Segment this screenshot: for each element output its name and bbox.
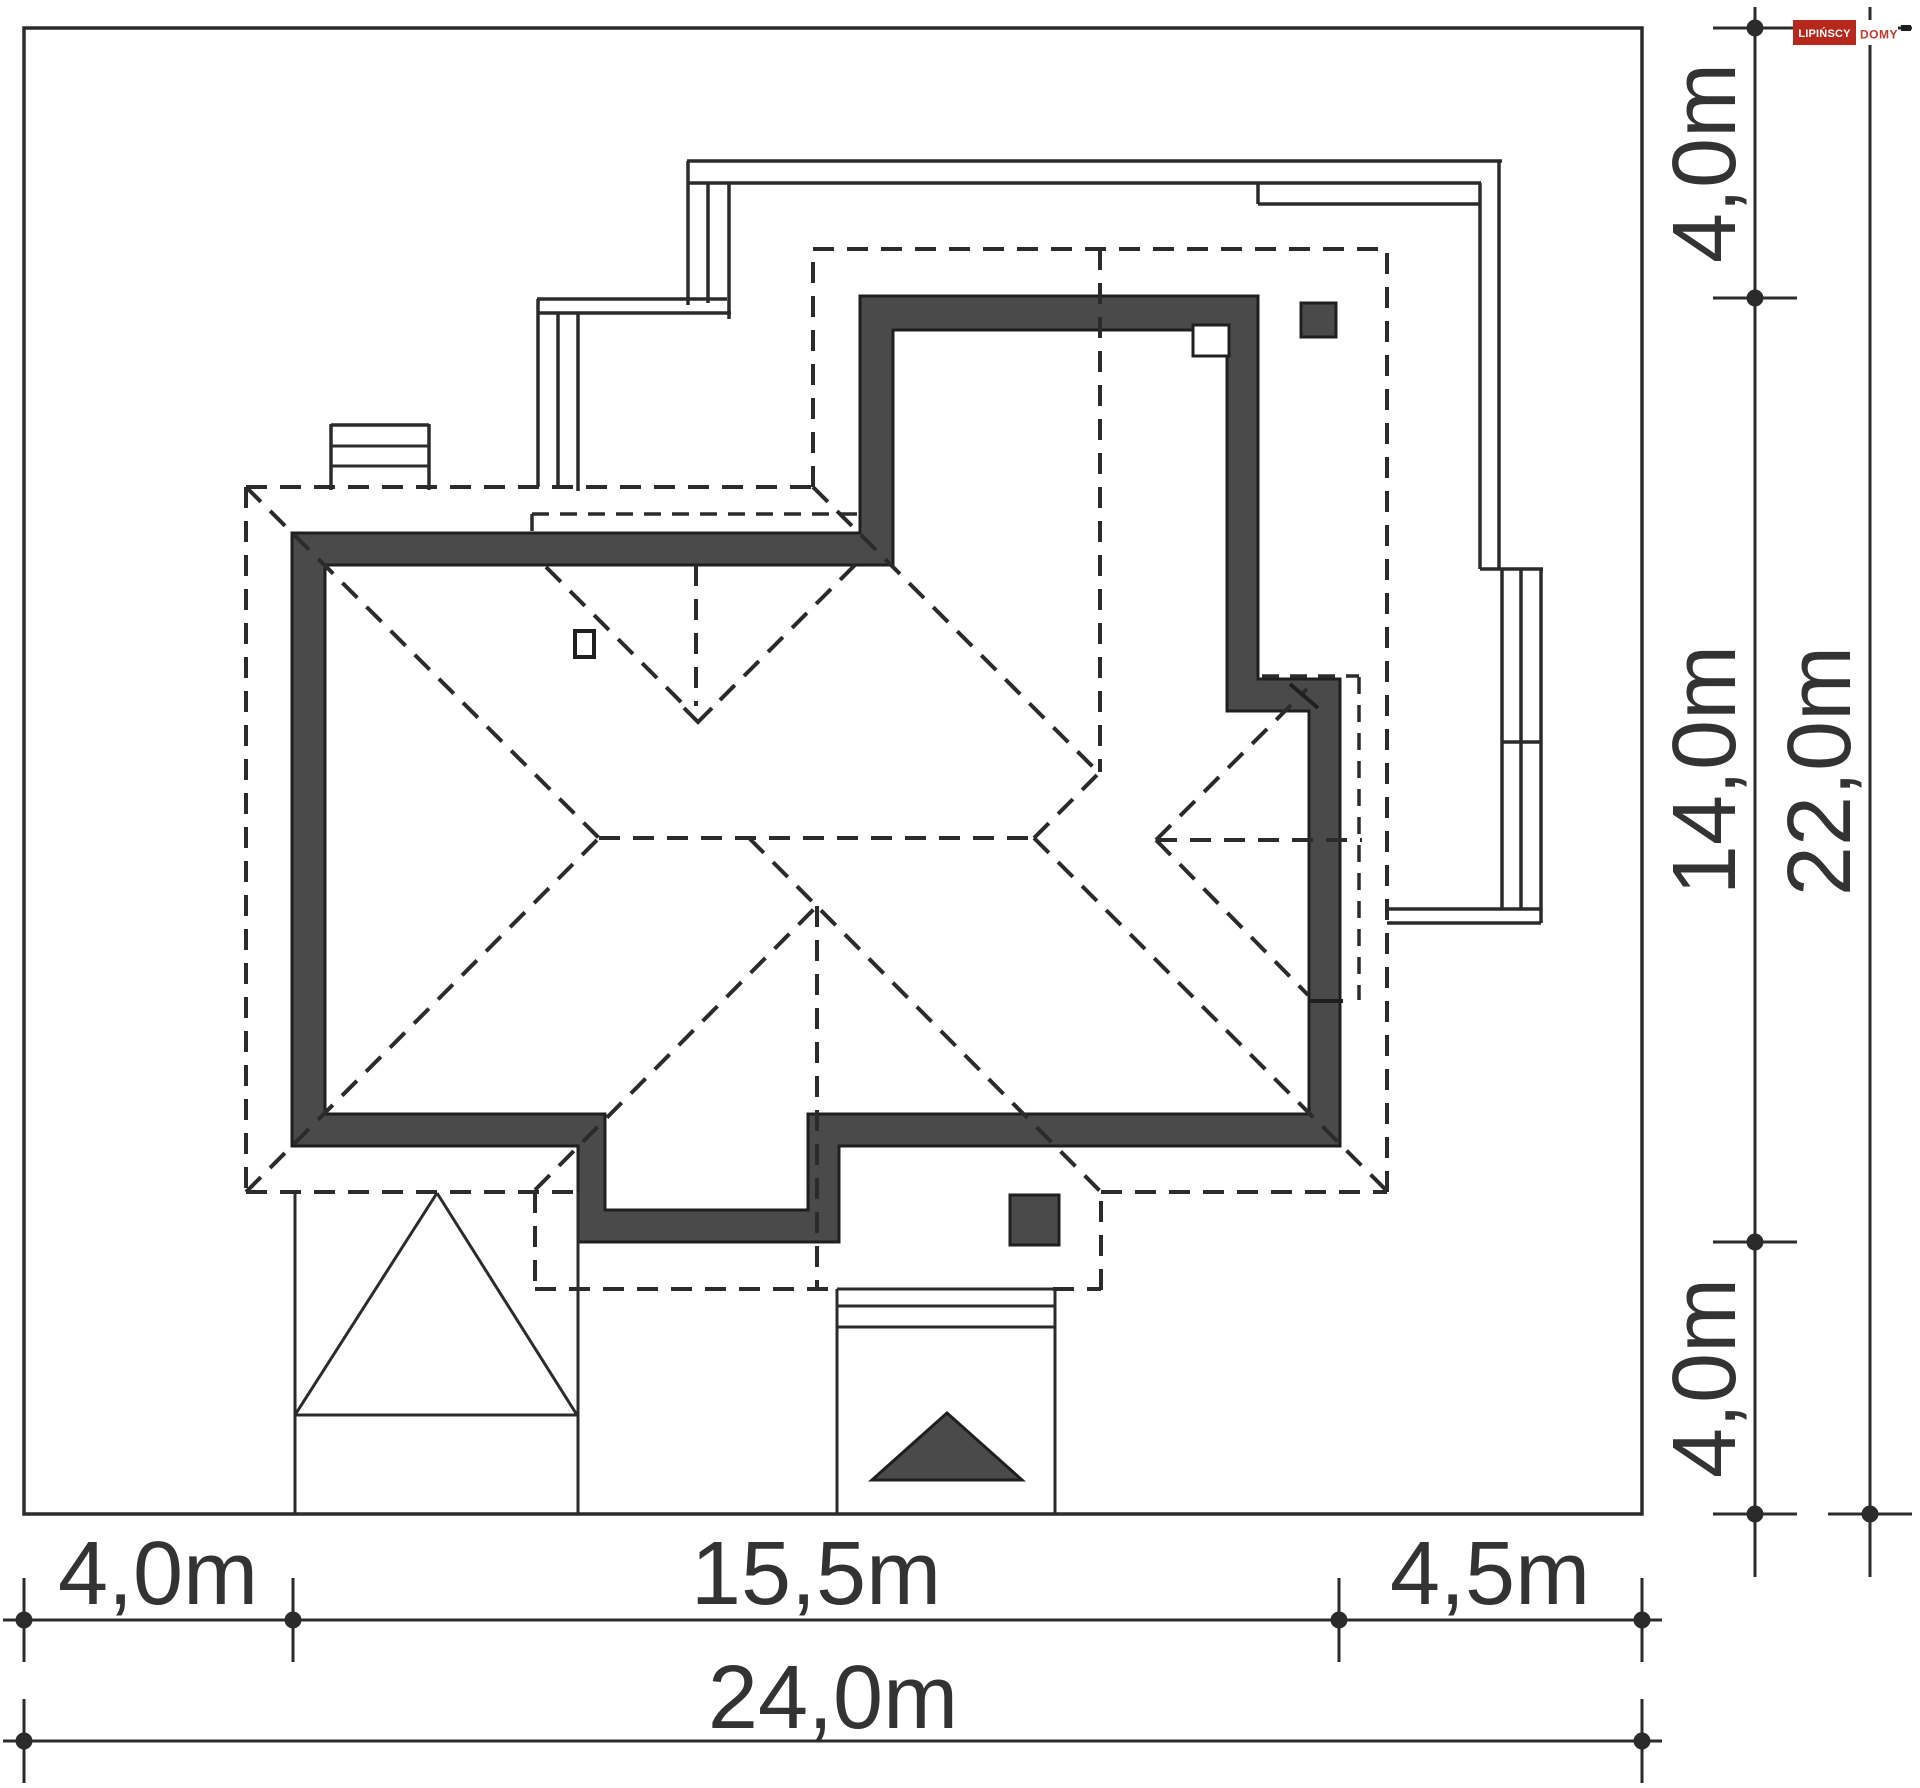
svg-text:15,5m: 15,5m	[691, 1524, 941, 1624]
svg-text:DOMY: DOMY	[1860, 28, 1898, 42]
svg-text:4,0m: 4,0m	[1655, 1278, 1755, 1478]
svg-text:22,0m: 22,0m	[1770, 646, 1870, 896]
svg-text:4,0m: 4,0m	[58, 1524, 258, 1624]
svg-text:24,0m: 24,0m	[708, 1648, 958, 1748]
svg-text:4,5m: 4,5m	[1390, 1524, 1590, 1624]
svg-text:LIPIŃSCY: LIPIŃSCY	[1798, 27, 1851, 40]
svg-text:4,0m: 4,0m	[1655, 63, 1755, 263]
svg-text:14,0m: 14,0m	[1655, 645, 1755, 895]
